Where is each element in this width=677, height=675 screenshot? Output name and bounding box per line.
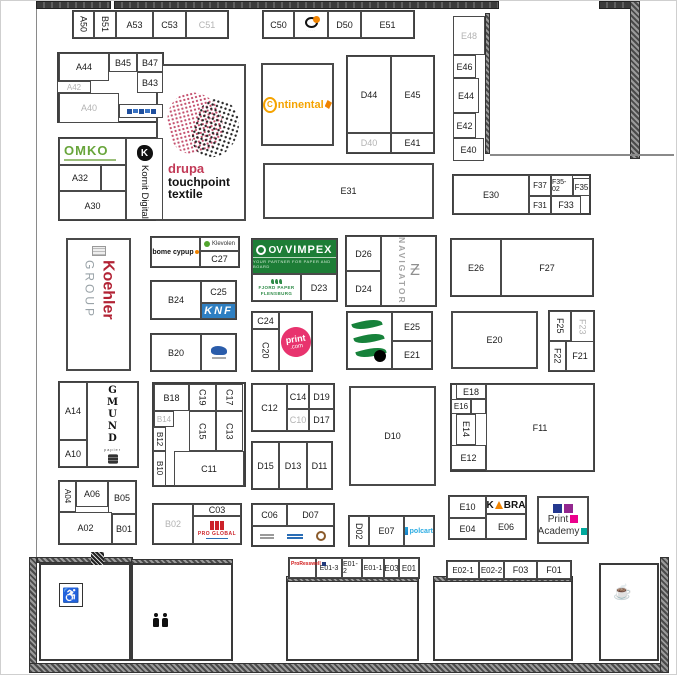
booth-D40[interactable]: D40 [347,133,391,153]
whale-text-bar [212,357,226,359]
omko-wordmark: OMKO [64,143,108,158]
omko-underline-icon [64,159,116,161]
booth-C11[interactable]: C11 [174,451,244,486]
booth-B51[interactable]: B51 [94,11,116,38]
booth-F25[interactable]: F25 [549,311,571,341]
vimpex-ring-icon [256,245,266,255]
booth-vimpex[interactable]: OV VIMPEX YOUR PARTNER FOR PAPER AND BOA… [252,239,337,274]
booth-A32[interactable]: A32 [59,165,101,191]
booth-blue-wordmark-logo[interactable] [119,104,163,118]
booth-D26[interactable]: D26 [346,236,381,271]
wall-top-center [114,1,499,9]
red-logo-text: PRO GLOBAL [198,531,236,537]
booth-continental[interactable]: C ntinental [261,63,334,146]
wall-inner-vertical [485,13,490,154]
printcom-tld: .com [289,342,303,350]
booth-E02-2[interactable]: E02-2 [479,561,504,579]
booth-B20[interactable]: B20 [151,334,201,371]
booth-A10[interactable]: A10 [59,440,87,467]
booth-E20[interactable]: E20 [451,311,538,369]
red-logo-underline [206,538,228,539]
booth-schoellershammer[interactable] [347,312,392,369]
koehler-group-label: GROUP [83,260,97,319]
booth-C13[interactable]: C13 [216,411,243,451]
floor-plan: ♿ ☕ ····· drupa touchpoint textile C nti… [0,0,677,675]
schoeller-dot-icon [374,350,386,362]
wheelchair-glyph: ♿ [62,587,79,604]
wall-top-left [36,1,111,9]
booth-ring-logo[interactable]: ····· [294,11,328,38]
booth-print-com[interactable]: print .com [279,312,312,371]
booth-B24[interactable]: B24 [151,281,201,319]
polcart-wordmark: polcart [410,528,433,535]
booth-C51[interactable]: C51 [186,11,228,38]
booth-C53[interactable]: C53 [153,11,186,38]
kobra-rest: BRA [504,500,526,511]
escalator-icon [91,552,104,565]
booth-A14[interactable]: A14 [59,382,87,440]
booth-A30[interactable]: A30 [59,191,126,220]
booth-A44[interactable]: A44 [59,53,109,81]
fjord-leaf-icon [271,279,282,284]
knf-wordmark: KNF [204,305,233,317]
booth-C25[interactable]: C25 [201,281,236,303]
booth-red-logo[interactable]: PRO GLOBAL [193,516,241,544]
red-logo-icon [210,521,224,530]
booth-E07[interactable]: E07 [369,516,404,546]
wheelchair-icon: ♿ [59,583,83,607]
gmund-wordmark: G M U N D [107,385,118,445]
booth-F11[interactable]: F11 [486,384,594,471]
schoeller-stripe-icon [351,316,382,333]
vimpex-tagline: YOUR PARTNER FOR PAPER AND BOARD [253,257,336,269]
booth-F01[interactable]: F01 [537,561,571,579]
kornit-wordmark: Kornit Digital [139,165,150,219]
booth-E03[interactable]: E03 [384,558,399,578]
booth-E01-2[interactable]: E01-2 [342,558,362,578]
booth-cell[interactable] [471,399,486,414]
continental-wordmark: ntinental [278,99,324,111]
booth-print-academy[interactable]: Print Academy [537,496,589,544]
booth-E45[interactable]: E45 [391,56,434,133]
booth-fjord-paper[interactable]: FJORD PAPER FLENSBURG [252,274,301,301]
booth-D24[interactable]: D24 [346,271,381,306]
service-room-3 [286,578,419,661]
booth-E21[interactable]: E21 [392,341,432,369]
whale-icon [211,346,227,355]
booth-F22[interactable]: F22 [549,341,566,371]
small-logo-blue-icon [287,533,303,540]
ring-logo-text: ····· [306,28,316,32]
continental-horse-icon [325,100,332,109]
pa-pink-square-icon [570,515,578,523]
booth-D10[interactable]: D10 [349,386,436,486]
booth-F35[interactable]: F35 [573,178,590,196]
wall-left-boundary [36,9,37,557]
booth-polcart[interactable]: polcart [404,516,434,546]
booth-E12[interactable]: E12 [451,445,486,470]
wall-bottom-outer [29,663,669,673]
gmund-papier-label: papier [104,447,121,452]
booth-F35-02[interactable]: F35-02 [551,175,573,196]
booth-B45[interactable]: B45 [109,53,137,72]
booth-E31[interactable]: E31 [263,163,434,219]
restroom-figure [153,613,159,627]
booth-F31[interactable]: F31 [529,196,551,214]
booth-F33[interactable]: F33 [551,196,581,214]
booth-D02[interactable]: D02 [349,516,369,546]
booth-A02[interactable]: A02 [59,512,112,544]
booth-E04[interactable]: E04 [449,518,486,539]
booth-knf[interactable]: KNF [201,303,236,319]
booth-drupa-touchpoint-textile[interactable]: drupa touchpoint textile [156,64,246,221]
booth-E10[interactable]: E10 [449,496,486,518]
booth-B10[interactable]: B10 [153,451,166,486]
booth-A53[interactable]: A53 [116,11,153,38]
booth-E06[interactable]: E06 [486,514,526,539]
booth-A40[interactable]: A40 [59,93,119,123]
booth-E02-1[interactable]: E02-1 [447,561,479,579]
booth-bome-cypup[interactable]: bome cypup [151,237,200,267]
booth-navigator[interactable]: NAVIGATOR Ƶ [381,236,436,306]
kornit-k-icon: K [137,145,153,161]
koehler-wordmark: Koehler [100,260,117,320]
booth-klevolen[interactable]: Klevolen [200,237,239,251]
koehler-crest-icon [92,246,106,256]
booth-E25[interactable]: E25 [392,312,432,341]
booth-E01-1[interactable]: E01-1 [362,558,384,578]
booth-koehler-group[interactable]: Koehler GROUP [66,238,131,371]
booth-omko[interactable]: OMKO [59,138,126,165]
booth-B05[interactable]: B05 [108,481,136,514]
pro-red-logo: ProResswell [291,561,326,567]
booth-C03[interactable]: C03 [193,504,241,516]
kobra-triangle-icon [495,501,503,509]
booth-F21[interactable]: F21 [566,341,594,371]
booth-F23[interactable]: F23 [571,311,594,343]
pa-purple-square-icon [564,504,573,513]
print-academy-line2: Academy [538,526,580,537]
schoeller-stripe-icon [353,330,384,347]
klevolen-leaf-icon [204,241,210,247]
navigator-wordmark: NAVIGATOR [397,237,407,305]
service-room-1 [39,563,131,661]
wall-bottom-left [29,557,37,673]
wall-inner-horizontal [490,154,674,156]
wall-right-upper [630,1,640,159]
kobra-k: K [487,500,494,511]
booth-E51[interactable]: E51 [361,11,414,38]
booth-F27[interactable]: F27 [501,239,593,296]
booth-C06[interactable]: C06 [252,504,287,526]
booth-B43[interactable]: B43 [137,72,163,93]
booth-C50[interactable]: C50 [263,11,294,38]
pa-blue-square-icon [553,504,562,513]
coffee-icon: ☕ [613,583,632,601]
small-logo-gray-icon [260,533,274,540]
booth-B12[interactable]: B12 [153,427,166,451]
restroom-icon [153,613,168,627]
booth-A50[interactable]: A50 [73,11,94,38]
navigator-z-icon: Ƶ [410,262,420,280]
gmund-stamp-icon [108,454,118,464]
drupa-wordmark: drupa [168,162,230,176]
service-room-4 [433,578,573,661]
booth-C15[interactable]: C15 [189,411,216,451]
booth-E40[interactable]: E40 [453,138,484,161]
printcom-disc-icon: print .com [279,325,312,359]
pro-red-logo-text: ProResswell [291,561,321,567]
small-logo-circle-icon [316,531,326,541]
booth-E14[interactable]: E14 [456,414,476,445]
booth-C19[interactable]: C19 [189,384,216,411]
booth-E44[interactable]: E44 [453,78,479,113]
drupa-textile-label: textile [168,188,230,201]
vimpex-wordmark: VIMPEX [285,244,333,256]
booth-small-logos[interactable] [252,526,334,546]
booth-whale-logo[interactable] [201,334,236,371]
klevolen-wordmark: Klevolen [212,241,235,247]
booth-F03[interactable]: F03 [504,561,537,579]
booth-kornit-digital[interactable]: K Kornit Digital [126,138,163,220]
booth-D11[interactable]: D11 [307,442,332,489]
print-academy-line1: Print [548,514,569,525]
booth-C17[interactable]: C17 [216,384,243,411]
bome-dot-icon [195,250,199,254]
booth-kobra[interactable]: K BRA [486,496,526,514]
pa-teal-square-icon [581,528,588,535]
booth-D15[interactable]: D15 [252,442,279,489]
booth-C10[interactable]: C10 [287,409,309,431]
booth-E26[interactable]: E26 [451,239,501,296]
booth-cell[interactable] [101,165,126,191]
polcart-icon [405,527,408,535]
bome-wordmark: bome cypup [152,249,193,256]
booth-E41[interactable]: E41 [391,133,434,153]
booth-D19[interactable]: D19 [309,384,334,409]
booth-A06[interactable]: A06 [76,481,108,507]
booth-A04[interactable]: A04 [59,481,76,512]
booth-D50[interactable]: D50 [328,11,361,38]
booth-B18[interactable]: B18 [154,384,189,411]
booth-C12[interactable]: C12 [252,384,287,431]
booth-D23[interactable]: D23 [301,274,337,301]
booth-E48[interactable]: E48 [453,16,485,55]
booth-C27[interactable]: C27 [200,251,239,267]
continental-c-icon: C [263,97,277,113]
booth-B02[interactable]: B02 [153,504,193,544]
coffee-glyph: ☕ [613,584,632,601]
orange-dot-icon [313,16,320,23]
booth-D07[interactable]: D07 [287,504,334,526]
booth-D17[interactable]: D17 [309,409,334,431]
booth-D44[interactable]: D44 [347,56,391,133]
fjord-wordmark-line2: FLENSBURG [261,291,293,296]
booth-B47[interactable]: B47 [137,53,163,72]
wall-bottom-right [660,557,669,673]
booth-B14[interactable]: B14 [154,411,174,427]
booth-B01[interactable]: B01 [112,514,136,544]
pro-square-icon [322,562,326,566]
blue-wordmark-icon [127,109,132,114]
service-room-2 [131,563,233,661]
booth-C24[interactable]: C24 [252,312,279,329]
booth-D13[interactable]: D13 [279,442,307,489]
booth-gmund[interactable]: G M U N D papier [87,382,138,467]
vimpex-prefix: OV [268,245,282,256]
booth-C14[interactable]: C14 [287,384,309,409]
booth-E16[interactable]: E16 [451,399,471,414]
booth-E46[interactable]: E46 [453,55,476,78]
booth-C20[interactable]: C20 [252,329,279,371]
booth-E01[interactable]: E01 [399,558,419,578]
booth-E42[interactable]: E42 [453,113,476,138]
booth-F37[interactable]: F37 [529,175,551,196]
restroom-figure [162,613,168,627]
service-room-5 [599,563,659,661]
booth-A42[interactable]: A42 [57,81,91,93]
booth-E30[interactable]: E30 [453,175,529,214]
booth-E18[interactable]: E18 [456,384,486,399]
